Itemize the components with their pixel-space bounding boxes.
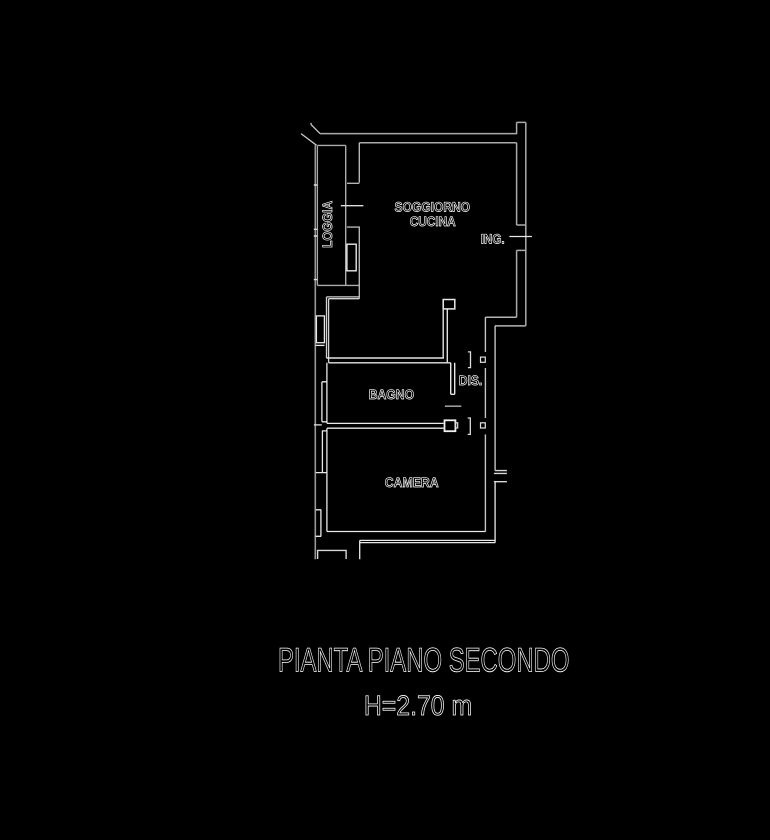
svg-text:BAGNO: BAGNO — [369, 387, 414, 402]
svg-text:H=2.70 m: H=2.70 m — [364, 690, 472, 721]
svg-text:SOGGIORNO: SOGGIORNO — [395, 199, 471, 214]
svg-text:DIS.: DIS. — [459, 373, 483, 388]
svg-text:ING.: ING. — [481, 232, 505, 247]
svg-text:PIANTA PIANO SECONDO: PIANTA PIANO SECONDO — [278, 642, 570, 680]
svg-text:CAMERA: CAMERA — [385, 475, 439, 490]
svg-text:LOGGIA: LOGGIA — [320, 201, 335, 248]
svg-text:CUCINA: CUCINA — [410, 214, 456, 229]
